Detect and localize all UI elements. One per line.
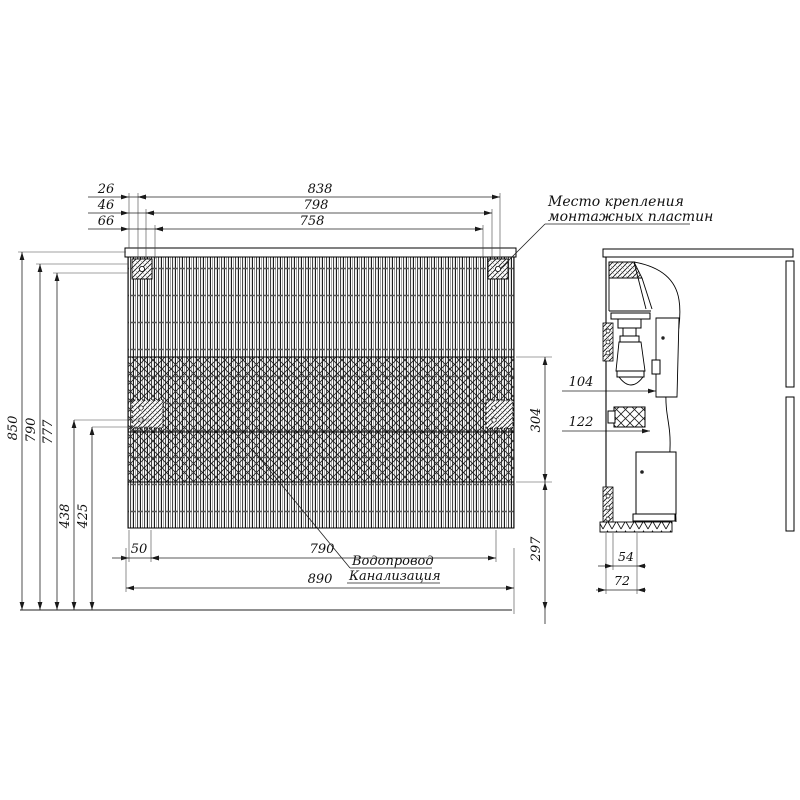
side-view: [600, 249, 794, 532]
side-panel-upper: [786, 261, 794, 387]
lower-drawer-box: [633, 452, 676, 521]
note-utilities-line1: Водопровод: [351, 554, 434, 569]
note-mounting-line1: Место крепления: [547, 194, 684, 210]
dimensions-bottom: 50 790 890: [112, 530, 514, 614]
dim-depth-122: 122: [569, 415, 594, 430]
countertop-side: [603, 249, 793, 257]
washbasin-section: [609, 262, 652, 311]
dim-width-758: 758: [300, 214, 325, 229]
dim-height-850: 850: [6, 416, 21, 441]
bottom-panel-section: [600, 522, 672, 532]
dim-height-425: 425: [76, 504, 91, 530]
dim-zone-297: 297: [529, 536, 544, 563]
dim-height-777: 777: [41, 419, 56, 445]
dim-offset-66: 66: [98, 214, 115, 229]
inner-panel: [652, 318, 679, 397]
note-utilities-line2: Канализация: [348, 569, 441, 584]
dim-depth-104: 104: [569, 375, 594, 390]
wall-rail-lower: [603, 487, 613, 527]
mounting-plate-mid-right: [486, 400, 513, 428]
wall-rail-upper: [603, 323, 613, 361]
mounting-plate-top-right: [488, 259, 508, 279]
dim-bottom-50: 50: [131, 542, 148, 557]
dimensions-top: 26 46 66 838 798 758: [88, 182, 500, 259]
siphon-trap: [611, 313, 650, 385]
vanity-dimension-drawing: 26 46 66 838 798 758 850: [0, 0, 800, 800]
dim-width-798: 798: [304, 198, 329, 213]
dim-side-72: 72: [614, 573, 630, 588]
dim-offset-26: 26: [97, 182, 115, 197]
dimensions-right: 304 297 104 122: [516, 357, 656, 624]
dim-bottom-890: 890: [308, 572, 333, 587]
note-mounting-line2: монтажных пластин: [548, 209, 713, 225]
mounting-plate-side: [608, 407, 645, 427]
dim-height-790: 790: [24, 418, 39, 443]
service-zone-band: [128, 357, 514, 482]
leader-mounting: [501, 224, 545, 268]
dim-offset-46: 46: [97, 198, 115, 213]
countertop-front: [125, 248, 516, 257]
dim-side-54: 54: [618, 549, 634, 564]
dimensions-side-bottom: 54 72: [596, 533, 646, 594]
mounting-plate-top-left: [132, 259, 152, 279]
front-view: [125, 248, 516, 528]
dim-width-838: 838: [308, 182, 333, 197]
dim-zone-304: 304: [529, 408, 544, 433]
technical-drawing-page: 26 46 66 838 798 758 850: [0, 0, 800, 800]
mounting-plate-mid-left: [132, 400, 163, 428]
dim-height-438: 438: [58, 504, 73, 530]
side-panel-lower: [786, 397, 794, 531]
